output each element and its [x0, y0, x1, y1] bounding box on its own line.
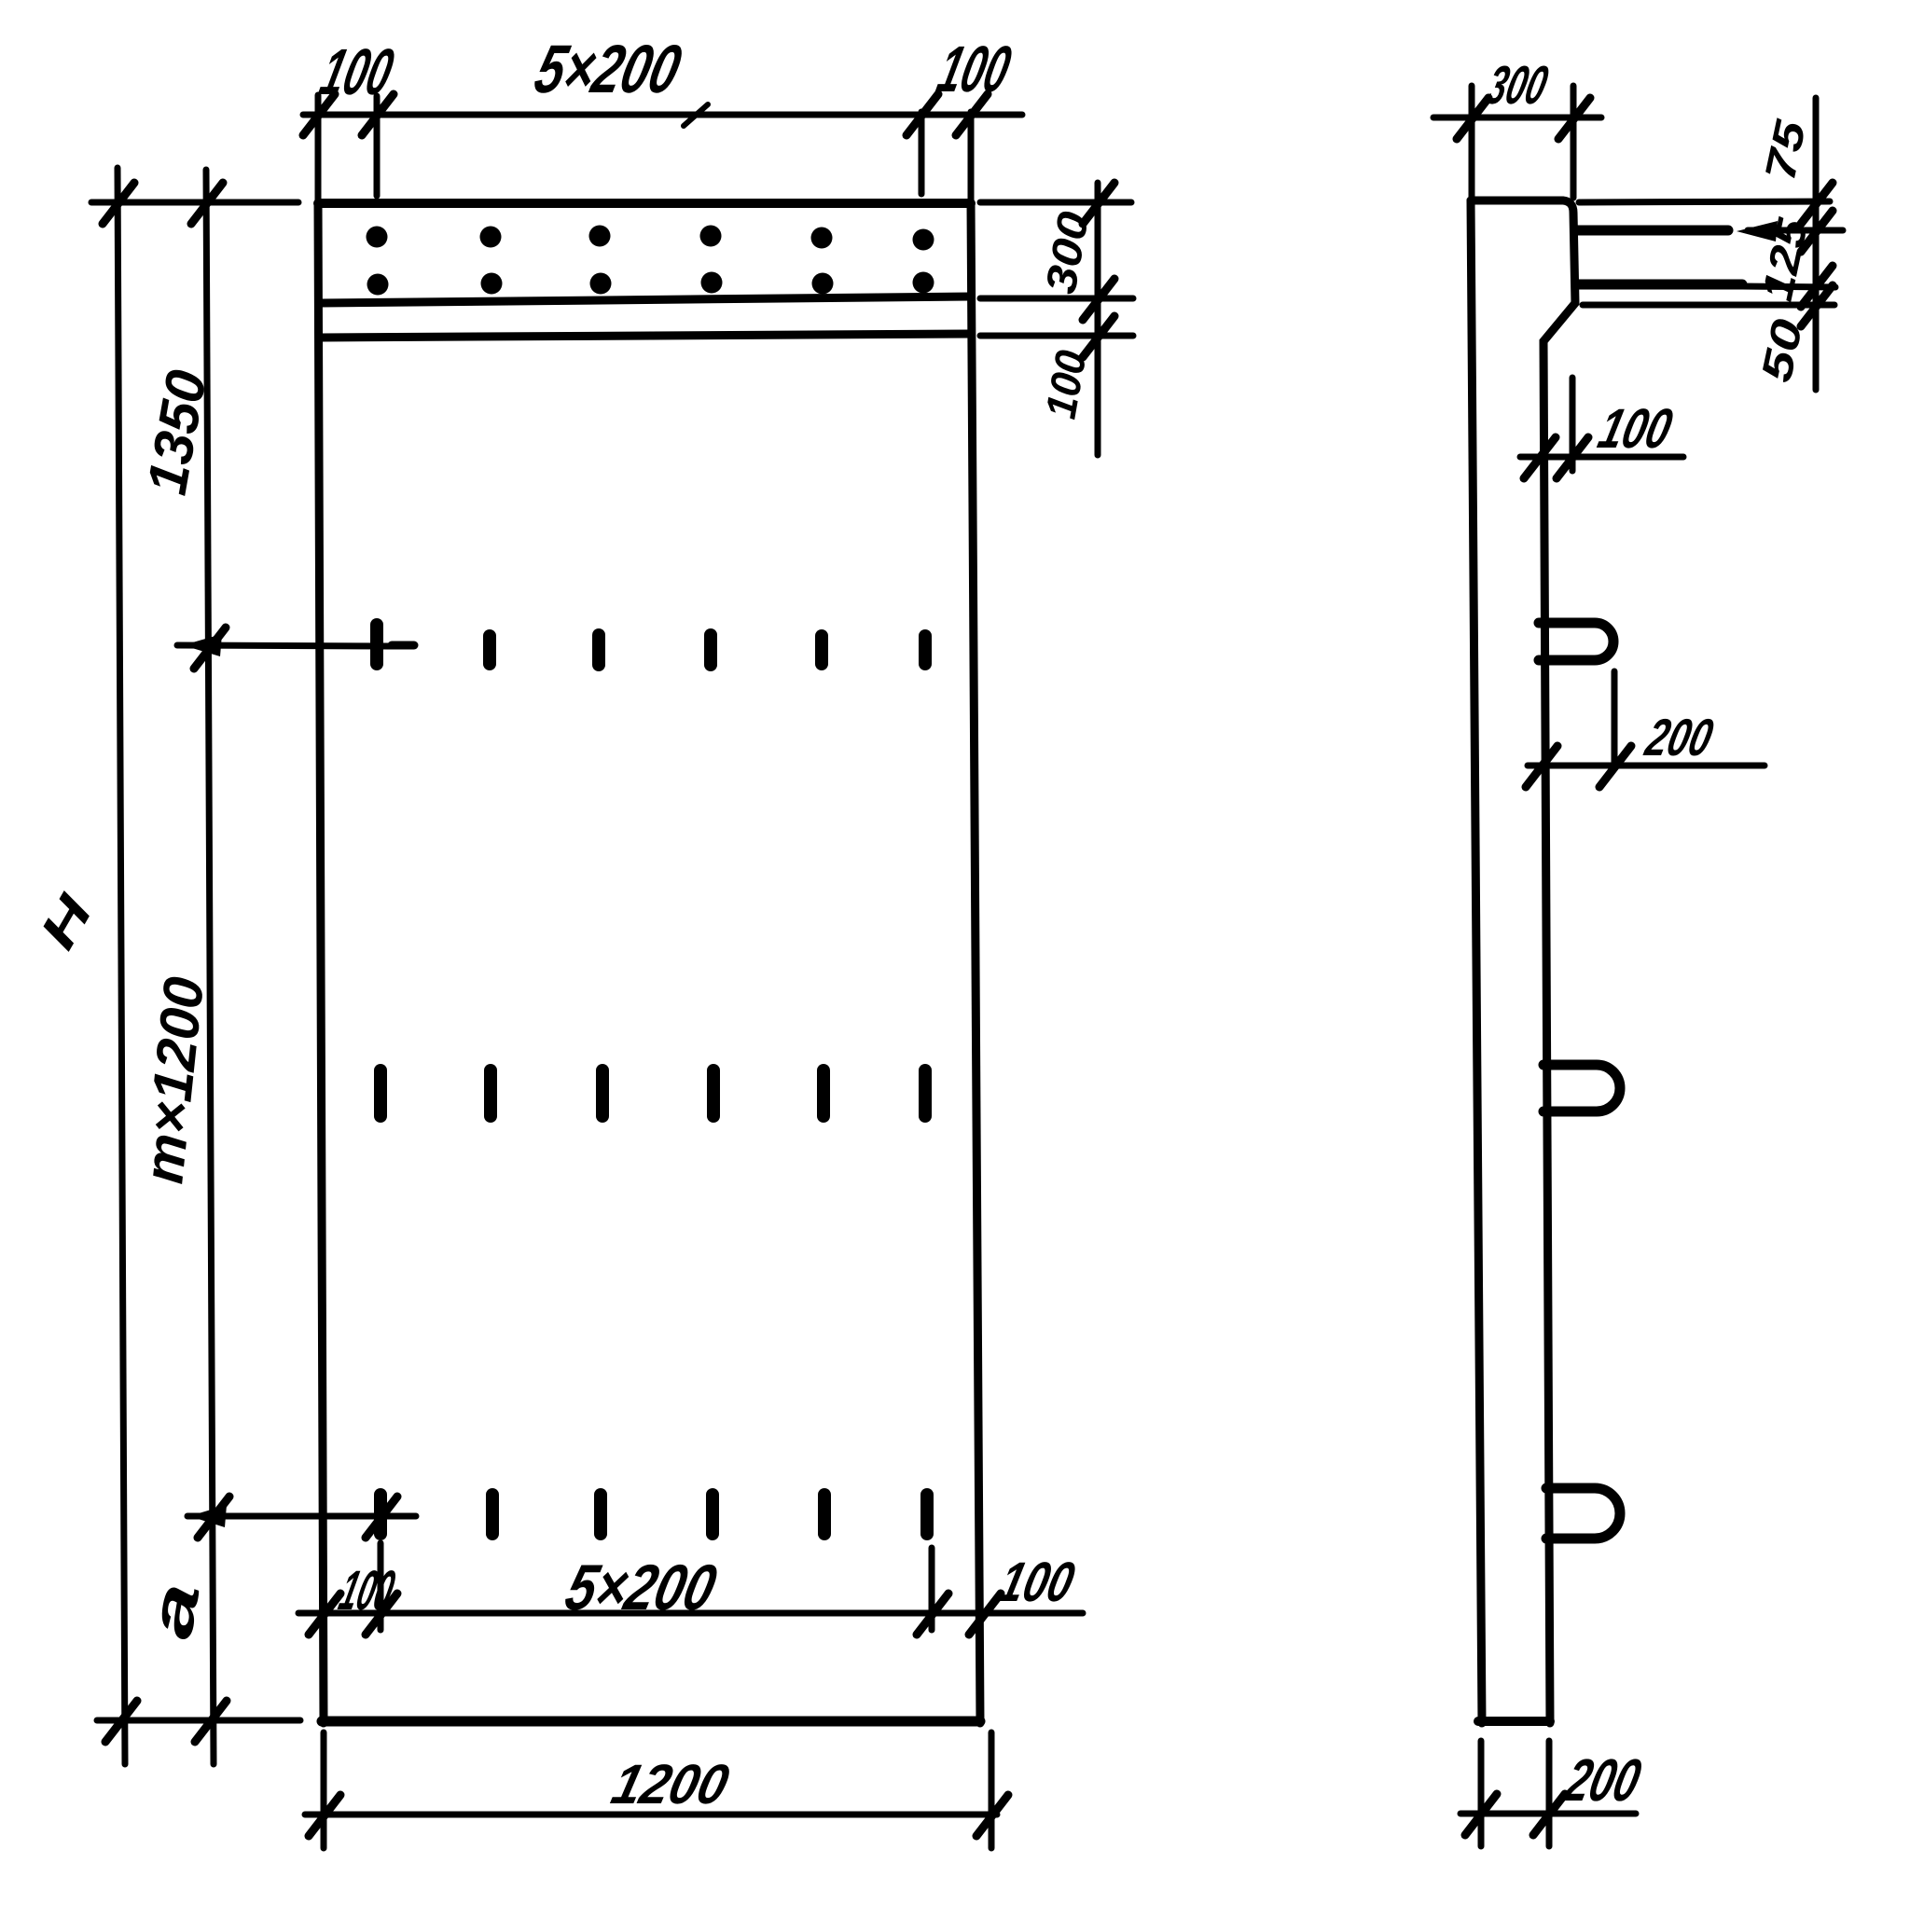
svg-text:m×1200: m×1200 — [131, 974, 215, 1187]
svg-text:100: 100 — [931, 33, 1017, 105]
svg-text:200: 200 — [1640, 709, 1719, 767]
svg-text:300: 300 — [1481, 55, 1554, 116]
svg-text:H: H — [29, 885, 104, 959]
svg-text:100: 100 — [993, 1551, 1081, 1613]
svg-text:a: a — [135, 1578, 213, 1644]
svg-text:200: 200 — [1558, 1747, 1648, 1815]
svg-text:100: 100 — [1036, 346, 1096, 421]
svg-text:50: 50 — [1751, 314, 1812, 386]
svg-text:75: 75 — [1755, 115, 1816, 185]
svg-text:300: 300 — [1036, 208, 1099, 297]
svg-text:5×200: 5×200 — [559, 1551, 723, 1623]
svg-text:5×200: 5×200 — [528, 31, 688, 106]
svg-text:1200: 1200 — [606, 1754, 735, 1816]
svg-text:100: 100 — [1593, 398, 1679, 461]
